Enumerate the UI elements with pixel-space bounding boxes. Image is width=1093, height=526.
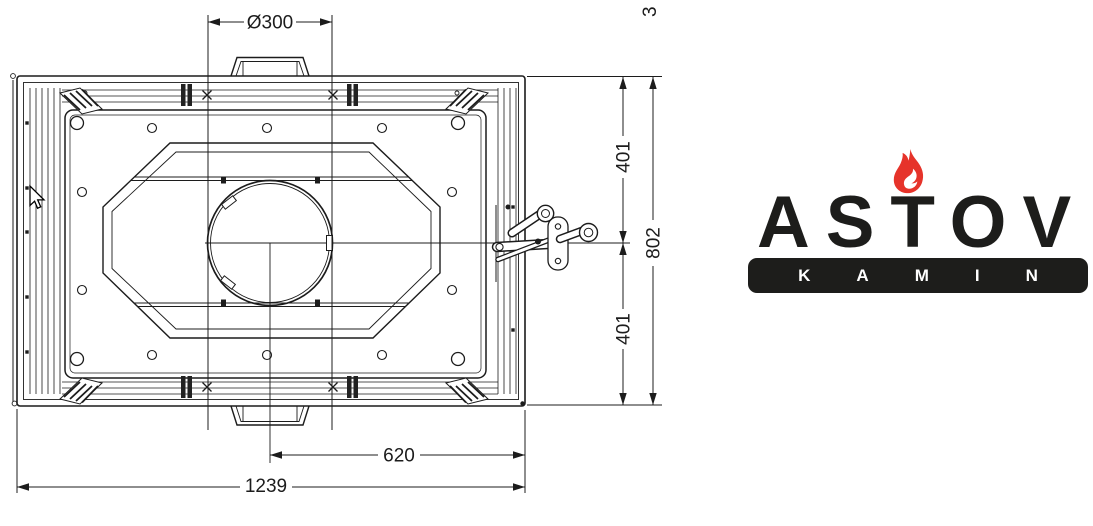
dim-width-center: 620 bbox=[383, 446, 415, 467]
brand-logo: ASTOV KAMIN bbox=[745, 145, 1093, 295]
baffle-octagon bbox=[103, 143, 440, 338]
frame-screws bbox=[25, 121, 524, 405]
dim-depth-lower: 401 bbox=[614, 313, 635, 345]
flue-collar-top bbox=[231, 58, 309, 77]
dim-flue-diameter: Ø300 bbox=[247, 13, 293, 34]
brand-name: ASTOV bbox=[757, 186, 1087, 259]
page: Ø300 401 401 802 620 1239 3 ASTOV KAMIN bbox=[0, 0, 1093, 526]
center-lines bbox=[205, 243, 628, 463]
mounting-holes bbox=[71, 91, 465, 391]
technical-drawing: Ø300 401 401 802 620 1239 3 bbox=[0, 0, 740, 526]
brand-subtitle-bar: KAMIN bbox=[748, 258, 1088, 293]
brand-subtitle: KAMIN bbox=[798, 266, 1084, 286]
dim-width-overall: 1239 bbox=[245, 476, 287, 497]
dim-depth-overall: 802 bbox=[644, 227, 665, 259]
dim-clipped-top-right: 3 bbox=[640, 6, 661, 17]
dim-depth-upper: 401 bbox=[614, 141, 635, 173]
dimension-labels: Ø300 401 401 802 620 1239 3 bbox=[245, 6, 665, 497]
corner-hinges bbox=[60, 88, 488, 404]
